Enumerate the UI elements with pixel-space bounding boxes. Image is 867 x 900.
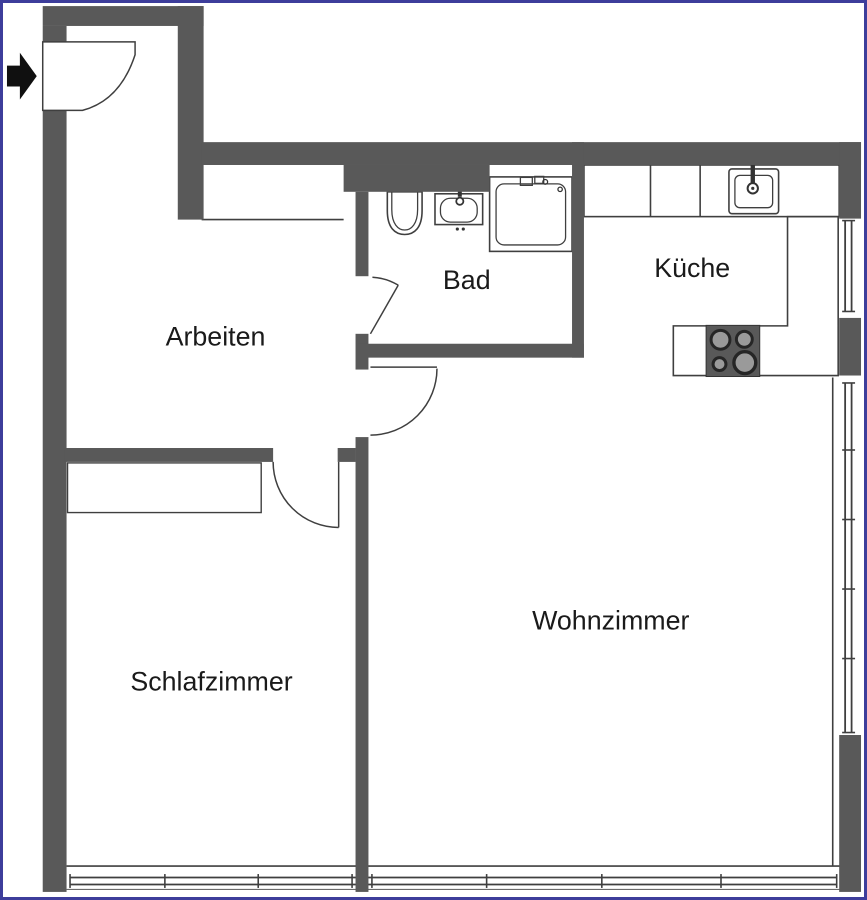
wall-bath-left <box>356 192 369 276</box>
burner <box>736 331 752 347</box>
wall-right-bottom <box>839 735 861 892</box>
bathroom-door <box>370 277 398 334</box>
wall-bath-kitchen-divider <box>572 142 584 357</box>
room-label-kueche: Küche <box>654 253 730 283</box>
room-label-bad: Bad <box>443 265 491 295</box>
wall-vestibule-right <box>178 6 204 220</box>
wall-bath-duct <box>344 165 490 192</box>
wall-bath-bottom <box>358 344 584 358</box>
entrance-door <box>43 42 135 111</box>
room-label-arbeiten: Arbeiten <box>166 322 266 352</box>
floor-plan-drawing: Arbeiten Bad Küche Schlafzimmer Wohnzimm… <box>3 3 864 897</box>
wall-left-main <box>43 110 67 892</box>
walls <box>43 6 861 892</box>
wall-bedroom-living-divider <box>356 437 369 892</box>
wall-bedroom-top-nib <box>338 448 356 462</box>
stove <box>706 325 760 376</box>
wall-main-top <box>202 142 861 165</box>
burner <box>734 352 756 374</box>
wardrobe <box>68 463 262 513</box>
entrance-arrow-icon <box>7 53 37 100</box>
burner <box>713 358 726 371</box>
wall-bedroom-top <box>65 448 274 462</box>
burner <box>711 330 730 349</box>
bottom-window-band <box>67 866 841 889</box>
room-label-wohnzimmer: Wohnzimmer <box>532 606 689 636</box>
wall-right-top <box>839 142 861 218</box>
wall-left-upper <box>43 26 67 42</box>
toilet <box>387 192 422 235</box>
room-label-schlafzimmer: Schlafzimmer <box>130 666 292 696</box>
shower <box>490 176 572 251</box>
bedroom-door <box>273 462 339 528</box>
wall-right-pier <box>839 318 861 376</box>
livingroom-door <box>370 367 437 435</box>
kitchen-sink <box>729 165 779 214</box>
floor-plan: Arbeiten Bad Küche Schlafzimmer Wohnzimm… <box>0 0 867 900</box>
